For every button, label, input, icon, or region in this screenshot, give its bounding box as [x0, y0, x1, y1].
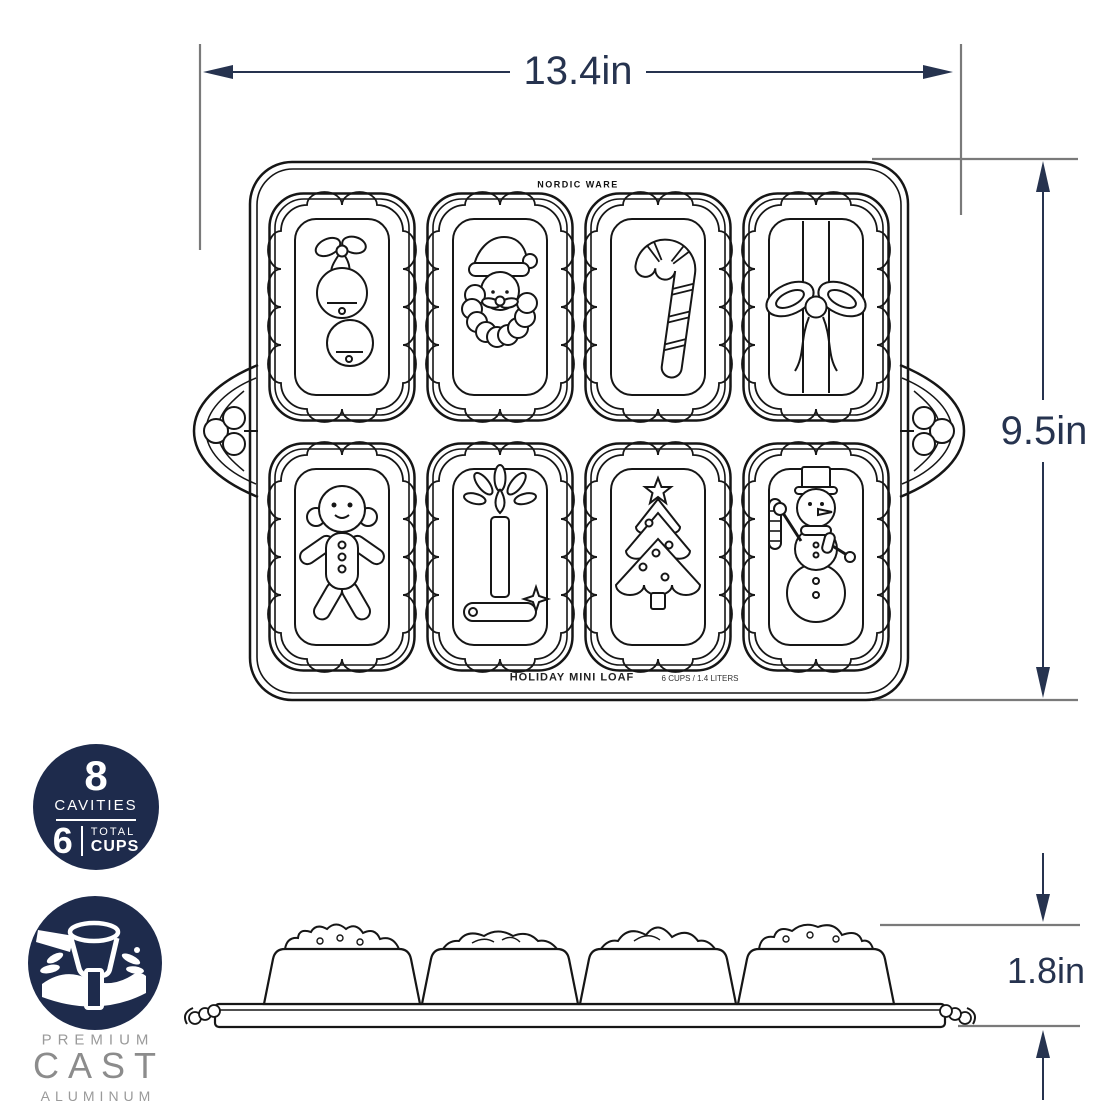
pan-brand-text: NORDIC WARE — [537, 181, 619, 190]
holly-handle-left — [194, 365, 258, 497]
jingle-bells-icon — [313, 234, 373, 366]
cavity-santa — [426, 192, 574, 422]
side-cavity-2 — [422, 932, 578, 1005]
cups-count: 6 — [53, 825, 73, 857]
cavity-gingerbread-man — [268, 442, 416, 672]
cavity-candle — [426, 442, 574, 672]
cavity-jingle-bells — [268, 192, 416, 422]
capacity-badge: 8 CAVITIES 6 TOTAL CUPS — [33, 744, 159, 870]
cavity-candy-cane — [584, 192, 732, 422]
depth-dimension-label: 1.8in — [1001, 953, 1091, 989]
cavity-snowman — [742, 442, 890, 672]
cavities-count: 8 — [84, 757, 107, 795]
material-label-aluminum: ALUMINUM — [41, 1089, 156, 1103]
gingerbread-man-icon — [297, 486, 387, 622]
pan-top-view — [194, 162, 964, 700]
cast-pour-icon — [28, 896, 162, 1030]
side-cavity-3 — [580, 927, 736, 1004]
candy-cane-icon — [621, 236, 699, 379]
material-badge — [28, 896, 162, 1030]
badge-vertical-divider — [81, 826, 83, 856]
holly-handle-right — [900, 365, 964, 497]
height-dimension-label: 9.5in — [995, 411, 1094, 451]
material-label-cast: CAST — [33, 1048, 165, 1084]
cavity-gift-bow — [742, 192, 890, 422]
cups-label-total: TOTAL — [91, 826, 135, 838]
side-cavity-1 — [264, 925, 420, 1005]
line-art-canvas — [0, 0, 1120, 1120]
product-dimension-diagram: 13.4in 9.5in 1.8in NORDIC WARE HOLIDAY M… — [0, 0, 1120, 1120]
width-dimension-label: 13.4in — [518, 51, 639, 91]
christmas-tree-icon — [616, 478, 700, 609]
side-cavity-4 — [738, 925, 894, 1004]
pan-side-view — [185, 925, 975, 1028]
pan-product-text: HOLIDAY MINI LOAF — [510, 673, 635, 684]
candle-icon — [463, 465, 548, 621]
pan-capacity-text: 6 CUPS / 1.4 LITERS — [662, 675, 739, 683]
cavity-christmas-tree — [584, 442, 732, 672]
snowman-icon — [769, 467, 855, 622]
cavities-label: CAVITIES — [54, 797, 137, 814]
cups-label-cups: CUPS — [91, 838, 139, 856]
santa-icon — [462, 237, 537, 347]
gift-bow-icon — [761, 221, 871, 393]
